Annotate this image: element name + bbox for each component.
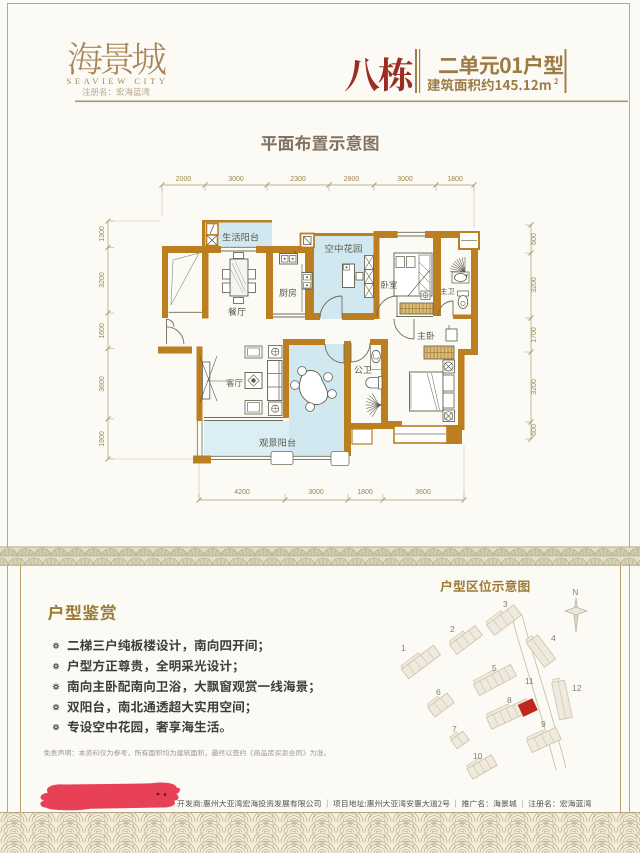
svg-text:3200: 3200 (531, 277, 538, 293)
svg-text:3200: 3200 (531, 379, 538, 395)
svg-text:5: 5 (492, 663, 497, 673)
svg-text:10: 10 (473, 751, 483, 761)
svg-text:8: 8 (507, 695, 512, 705)
svg-text:9: 9 (541, 719, 546, 729)
svg-text:2000: 2000 (176, 176, 192, 183)
svg-text:1: 1 (401, 643, 406, 653)
svg-text:600: 600 (531, 424, 538, 436)
svg-text:3000: 3000 (397, 176, 413, 183)
svg-text:3600: 3600 (415, 489, 431, 496)
svg-text:3000: 3000 (308, 489, 324, 496)
svg-text:N: N (573, 588, 579, 597)
svg-text:3200: 3200 (99, 272, 106, 288)
svg-text:1800: 1800 (357, 489, 373, 496)
svg-text:12: 12 (572, 683, 582, 693)
svg-text:3600: 3600 (99, 376, 106, 392)
svg-text:2300: 2300 (290, 176, 306, 183)
svg-text:1300: 1300 (99, 226, 106, 242)
svg-text:1800: 1800 (447, 176, 463, 183)
svg-text:3: 3 (503, 599, 508, 609)
svg-text:1900: 1900 (99, 431, 106, 447)
svg-text:SEAVIEW CITY: SEAVIEW CITY (67, 76, 169, 86)
svg-text:6: 6 (436, 687, 441, 697)
svg-text:4: 4 (551, 633, 556, 643)
svg-text:1700: 1700 (531, 327, 538, 343)
svg-text:7: 7 (452, 724, 457, 734)
svg-text:4200: 4200 (234, 489, 250, 496)
svg-text:3000: 3000 (228, 176, 244, 183)
svg-text:2: 2 (450, 624, 455, 634)
svg-text:600: 600 (531, 233, 538, 245)
svg-text:11: 11 (525, 676, 534, 686)
svg-text:2800: 2800 (344, 176, 360, 183)
svg-text:1600: 1600 (99, 323, 106, 339)
